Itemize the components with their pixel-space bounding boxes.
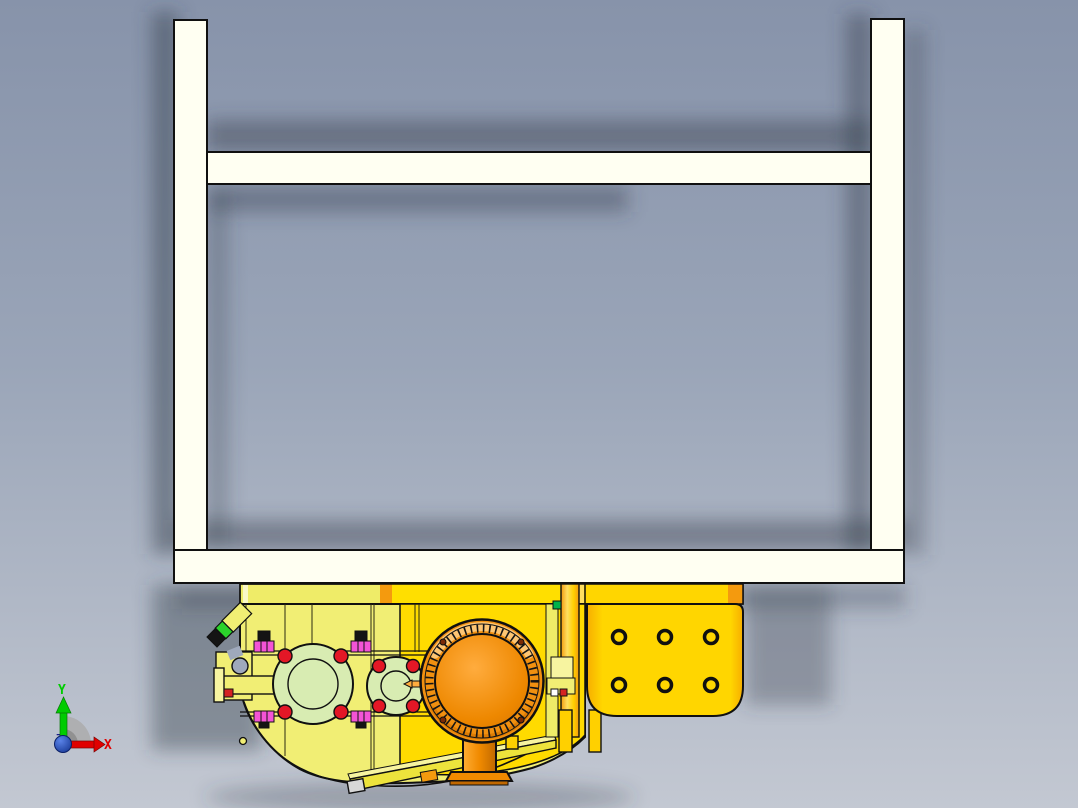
- bracket-end-cap: [214, 668, 224, 702]
- ring-gear[interactable]: [421, 620, 544, 743]
- gear-face: [435, 634, 529, 728]
- ring-bolt: [440, 639, 446, 645]
- flange-bolt: [278, 649, 292, 663]
- band-stripe-4: [728, 584, 743, 604]
- flange-bolt: [407, 660, 420, 673]
- leg: [559, 710, 572, 752]
- fastener-cap: [355, 631, 367, 641]
- ring-bolt: [518, 717, 524, 723]
- fastener-nut: [254, 711, 274, 722]
- fastener-cap: [356, 722, 366, 728]
- frame-cross-beam[interactable]: [207, 152, 871, 184]
- bracket-red-chip: [224, 689, 233, 697]
- flange-bolt: [334, 649, 348, 663]
- mounting-band: [240, 584, 743, 604]
- flange-bolt: [334, 705, 348, 719]
- chip-green: [553, 601, 561, 609]
- axis-y-label: Y: [58, 683, 66, 698]
- band-right-section: [585, 584, 743, 604]
- band-highlight: [243, 585, 248, 603]
- cad-3d-viewport[interactable]: Z Y X: [0, 0, 1078, 808]
- pedestal-base-dark: [450, 781, 508, 785]
- fastener-cap: [258, 631, 270, 641]
- chip-white: [551, 689, 558, 696]
- fastener-nut: [254, 641, 274, 652]
- leg: [589, 710, 601, 752]
- strip-tab: [420, 770, 437, 783]
- frame-left-post[interactable]: [174, 20, 207, 550]
- flange-bolt: [373, 660, 386, 673]
- flange-bolt: [407, 700, 420, 713]
- band-stripe-1: [380, 584, 392, 604]
- frame-bottom-beam[interactable]: [174, 550, 904, 583]
- pedestal-base: [446, 772, 512, 781]
- mounting-plate[interactable]: [587, 604, 743, 716]
- fastener-cap: [259, 722, 269, 728]
- fastener-nut: [351, 711, 371, 722]
- bracket-hook-notch: [232, 658, 248, 674]
- axis-origin-sphere[interactable]: [55, 736, 72, 753]
- housing-pin-hole: [240, 738, 247, 745]
- flange-bolt: [373, 700, 386, 713]
- axis-x-label: X: [104, 738, 112, 753]
- ring-bolt: [518, 639, 524, 645]
- bearing-flange-large[interactable]: [273, 644, 353, 724]
- flange-bolt: [278, 705, 292, 719]
- fastener-nut: [351, 641, 371, 652]
- chip-red: [560, 689, 567, 696]
- ring-bolt: [440, 717, 446, 723]
- frame-right-post[interactable]: [871, 19, 904, 550]
- strip-foot: [347, 779, 365, 794]
